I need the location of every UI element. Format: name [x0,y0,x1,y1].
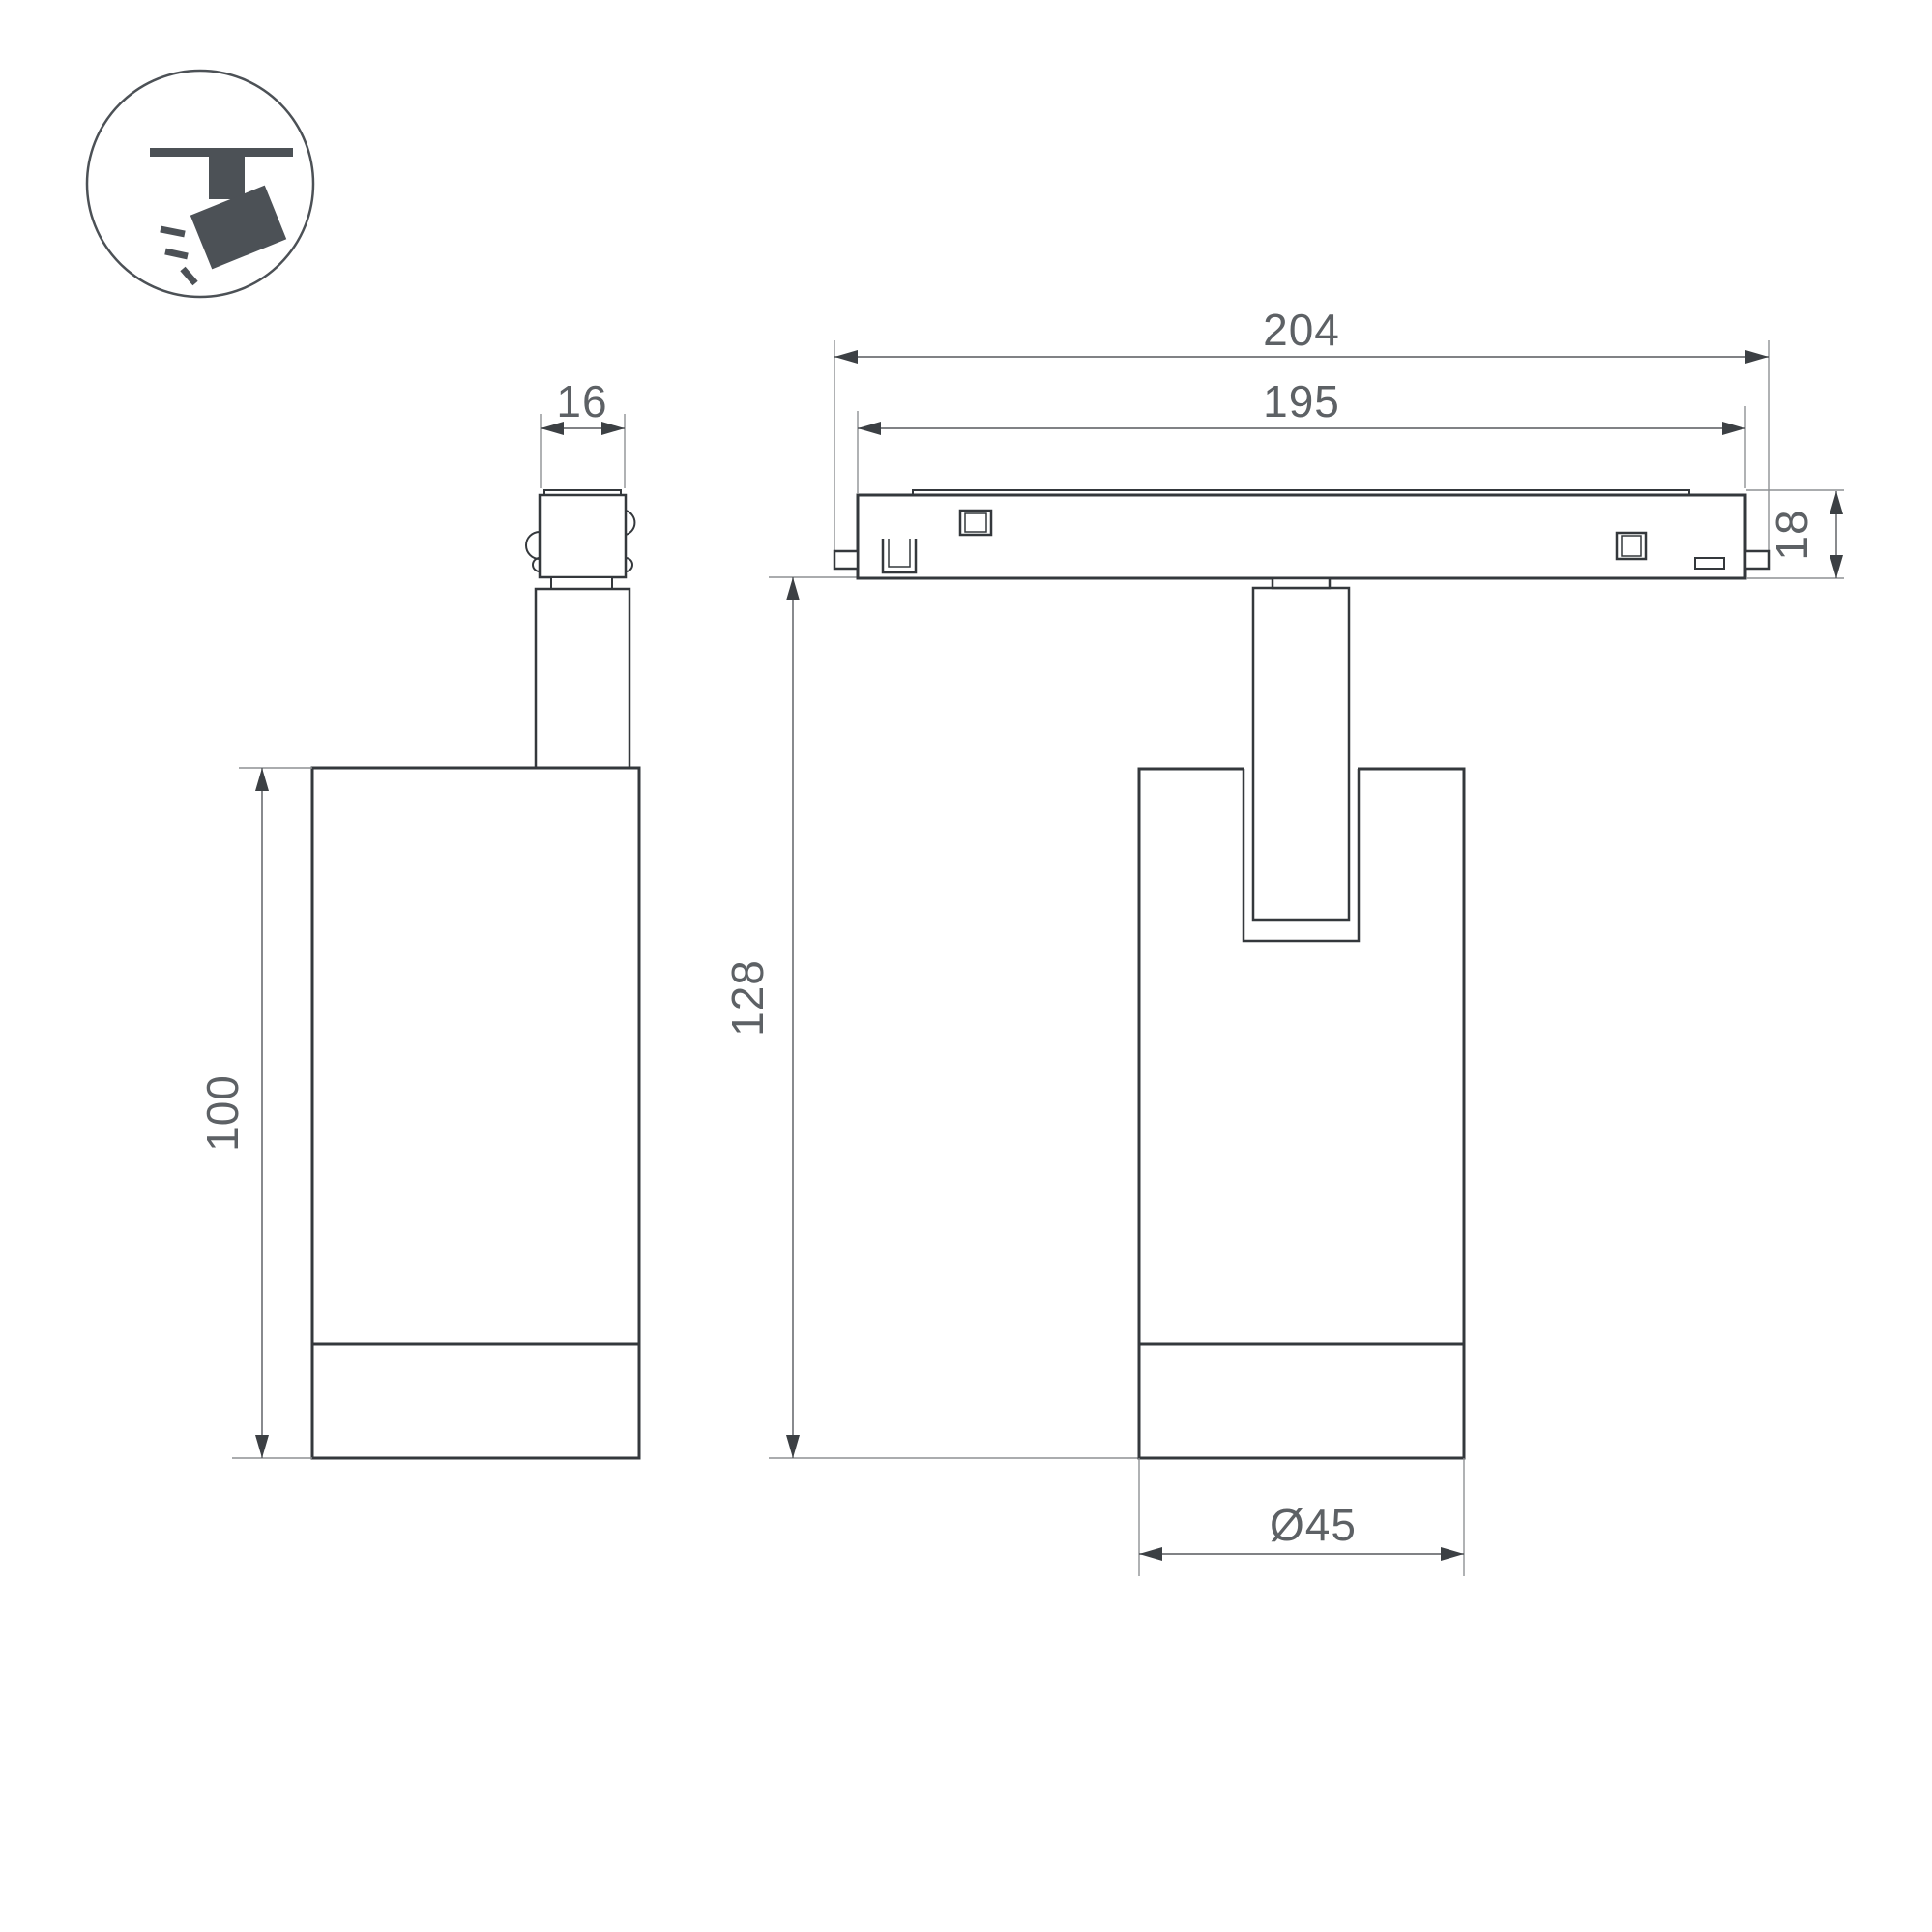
dim-100-arrow-top [255,768,269,791]
track-spotlight-icon [87,71,313,297]
dim-128-label: 128 [722,959,773,1037]
track-end-tab-right [1745,551,1769,569]
side-view: 16 100 [197,376,639,1458]
dim-195-label: 195 [1263,376,1340,426]
dim-diameter: Ø45 [1139,1458,1464,1576]
track-slot-right [1695,558,1724,569]
track-end-tab-left [834,551,858,569]
side-neck [551,577,612,589]
dim-diameter-label: Ø45 [1270,1500,1357,1550]
dim-diameter-arrow-left [1139,1547,1162,1561]
side-clip-right-large [626,511,634,535]
dimension-drawing: 16 100 204 [0,0,1932,1932]
front-view: 204 195 [722,305,1844,1576]
dim-195-arrow-right [1722,422,1745,435]
side-connector-box [540,495,626,577]
dim-18-label: 18 [1767,509,1817,560]
dim-diameter-arrow-right [1441,1547,1464,1561]
dim-100: 100 [197,768,312,1458]
front-stem [1253,588,1349,920]
dim-204-arrow-left [834,350,858,364]
front-stem-connector [1273,578,1330,588]
side-body [312,768,639,1458]
drawing-canvas: 16 100 204 [0,0,1932,1932]
track-bar [858,495,1745,578]
side-clip-left-large [526,532,540,559]
dim-18-arrow-top [1830,491,1843,514]
dim-100-arrow-bottom [255,1435,269,1458]
dim-16: 16 [541,376,625,488]
dim-16-label: 16 [556,376,607,426]
icon-stem [209,153,245,199]
dim-204-arrow-right [1745,350,1769,364]
dim-18-arrow-bottom [1830,555,1843,578]
dim-195-arrow-left [858,422,881,435]
dim-128-arrow-top [786,577,800,600]
dim-128-arrow-bottom [786,1435,800,1458]
icon-circle [87,71,313,297]
side-stem [536,589,629,768]
dim-195: 195 [858,376,1745,493]
dim-204-label: 204 [1263,305,1340,355]
dim-128: 128 [722,577,800,1458]
dim-100-label: 100 [197,1074,248,1152]
